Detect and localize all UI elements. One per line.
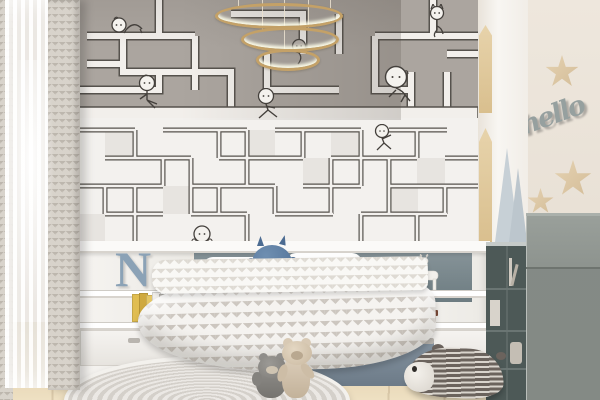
crawling-baby-doodle [110,12,146,36]
walking-figure-doodle [253,88,285,120]
striped-plush-tail [496,352,506,360]
bedroom-scene: hello [0,0,600,400]
wardrobe-arch-niche [479,128,492,244]
drawer-handle [128,338,140,343]
sitting-figure-doodle [136,74,164,110]
chandelier-wire [330,0,331,8]
duvet-fold [152,256,428,294]
maze-wallpaper-bottom-section [77,118,478,248]
cabinet-top-edge [526,213,600,216]
cube-shelf-row [486,288,528,290]
standing-figure-doodle [381,64,417,104]
shelf-basket [510,342,522,364]
cat-doodle [426,4,448,38]
shelf-books [490,300,500,326]
cube-shelf-row [486,330,528,332]
chandelier-ring-large [215,3,343,29]
window-light [8,60,54,310]
runner-figure-doodle [372,124,398,152]
wardrobe-arch-niche [479,25,492,113]
letter-n-decor: N [108,247,158,291]
striped-plush-snout [404,362,434,392]
gray-cabinet [526,213,600,400]
striped-plush-eye [412,366,417,372]
beige-teddy-muzzle [291,351,303,360]
gray-teddy-muzzle [266,366,278,374]
cabinet-door-seam [526,267,600,269]
chandelier-ring-small [256,49,320,71]
cube-shelf-divider [506,246,508,400]
